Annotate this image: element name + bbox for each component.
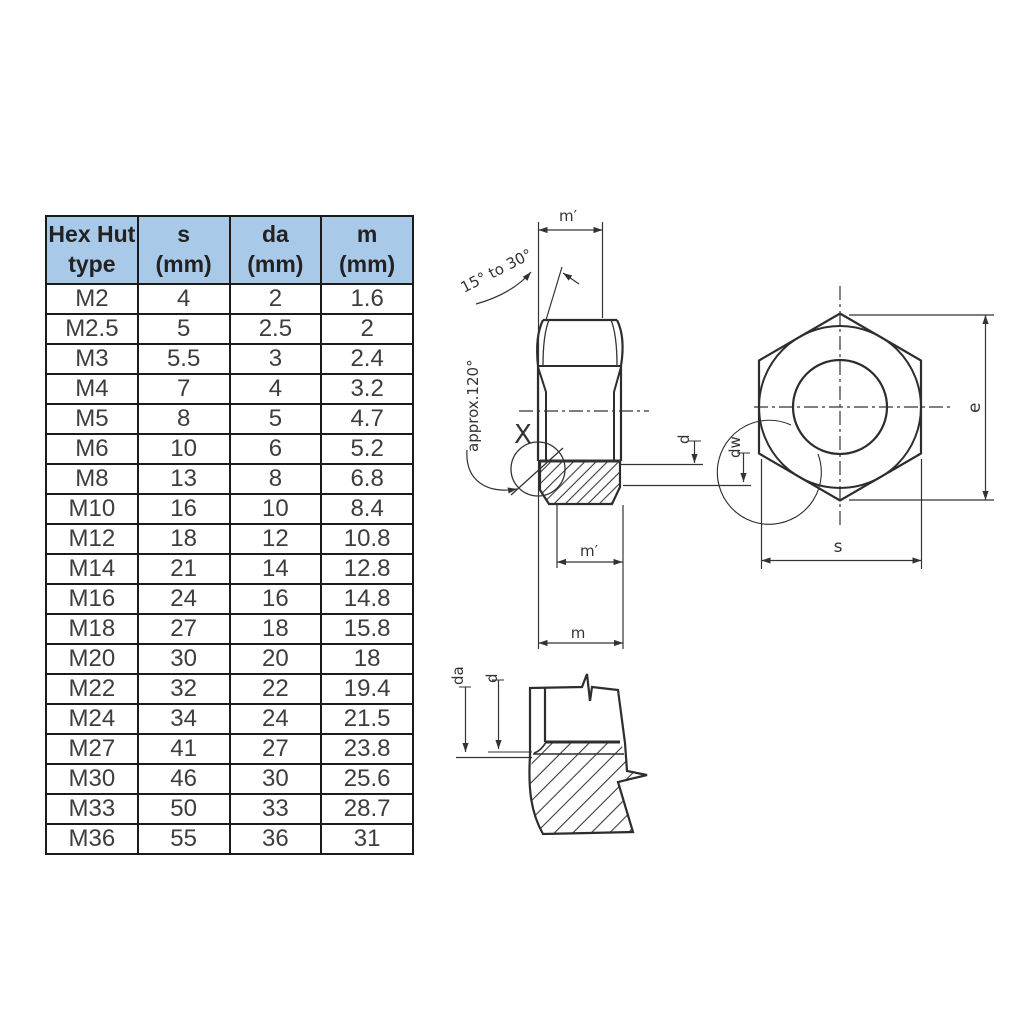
chamfer-angle-arrow bbox=[563, 273, 579, 284]
table-cell: 5.5 bbox=[138, 344, 230, 374]
da-label: da bbox=[449, 666, 467, 685]
table-row: M2.552.52 bbox=[46, 314, 413, 344]
d-label: d bbox=[675, 434, 693, 444]
table-cell: 16 bbox=[138, 494, 230, 524]
header-line: type bbox=[47, 250, 137, 280]
table-cell: 8 bbox=[230, 464, 322, 494]
table-cell: 55 bbox=[138, 824, 230, 854]
table-cell: 41 bbox=[138, 734, 230, 764]
table-cell: M30 bbox=[46, 764, 138, 794]
header-line: Hex Hut bbox=[47, 220, 137, 250]
table-row: M4743.2 bbox=[46, 374, 413, 404]
table-cell: M8 bbox=[46, 464, 138, 494]
table-cell: 16 bbox=[230, 584, 322, 614]
header-line: m bbox=[322, 220, 412, 250]
table-cell: 36 bbox=[230, 824, 322, 854]
table-cell: 4.7 bbox=[321, 404, 413, 434]
table-cell: M10 bbox=[46, 494, 138, 524]
table-cell: 34 bbox=[138, 704, 230, 734]
header-line: (mm) bbox=[322, 250, 412, 280]
table-cell: 21.5 bbox=[321, 704, 413, 734]
table-cell: 12 bbox=[230, 524, 322, 554]
dimension-lines bbox=[539, 230, 624, 643]
table-cell: M36 bbox=[46, 824, 138, 854]
table-cell: M12 bbox=[46, 524, 138, 554]
table-cell: 4 bbox=[138, 284, 230, 314]
table-row: M61065.2 bbox=[46, 434, 413, 464]
hex-nut-spec-image: Hex Hut type s (mm) da (mm) m (mm) M2421… bbox=[0, 0, 1024, 1024]
table-cell: 12.8 bbox=[321, 554, 413, 584]
table-row: M2421.6 bbox=[46, 284, 413, 314]
countersink-leader-arc bbox=[467, 450, 517, 490]
table-cell: 10 bbox=[230, 494, 322, 524]
table-cell: 3.2 bbox=[321, 374, 413, 404]
header-line: s bbox=[139, 220, 229, 250]
table-cell: 2 bbox=[230, 284, 322, 314]
table-row: M24342421.5 bbox=[46, 704, 413, 734]
table-cell: 2.5 bbox=[230, 314, 322, 344]
table-cell: 28.7 bbox=[321, 794, 413, 824]
table-header-row: Hex Hut type s (mm) da (mm) m (mm) bbox=[46, 216, 413, 284]
table-cell: 5 bbox=[138, 314, 230, 344]
table-cell: 19.4 bbox=[321, 674, 413, 704]
table-cell: 24 bbox=[230, 704, 322, 734]
table-cell: 31 bbox=[321, 824, 413, 854]
table-cell: M24 bbox=[46, 704, 138, 734]
table-header: Hex Hut type s (mm) da (mm) m (mm) bbox=[46, 216, 413, 284]
table-cell: 50 bbox=[138, 794, 230, 824]
header-hex-nut-type: Hex Hut type bbox=[46, 216, 138, 284]
table-cell: 32 bbox=[138, 674, 230, 704]
table-cell: 24 bbox=[138, 584, 230, 614]
table-cell: M4 bbox=[46, 374, 138, 404]
table-cell: M2.5 bbox=[46, 314, 138, 344]
extension-lines bbox=[539, 222, 624, 649]
s-label: s bbox=[834, 537, 843, 557]
table-cell: 1.6 bbox=[321, 284, 413, 314]
header-da: da (mm) bbox=[230, 216, 322, 284]
table-cell: 7 bbox=[138, 374, 230, 404]
table-row: M30463025.6 bbox=[46, 764, 413, 794]
table-body: M2421.6M2.552.52M35.532.4M4743.2M5854.7M… bbox=[46, 284, 413, 854]
table-cell: M5 bbox=[46, 404, 138, 434]
table-cell: 2 bbox=[321, 314, 413, 344]
table-cell: 33 bbox=[230, 794, 322, 824]
side-view: m′ 15° to 30° approx.120° X d dw m′ m bbox=[458, 207, 751, 649]
table-cell: M18 bbox=[46, 614, 138, 644]
m-prime-top-label: m′ bbox=[559, 207, 578, 225]
table-cell: 3 bbox=[230, 344, 322, 374]
table-cell: M27 bbox=[46, 734, 138, 764]
table-cell: M33 bbox=[46, 794, 138, 824]
table-cell: 5.2 bbox=[321, 434, 413, 464]
d-detail-label: d bbox=[483, 673, 501, 683]
countersink-angle-note: approx.120° bbox=[464, 359, 482, 452]
table-cell: 10.8 bbox=[321, 524, 413, 554]
table-cell: 8.4 bbox=[321, 494, 413, 524]
technical-drawing: m′ 15° to 30° approx.120° X d dw m′ m bbox=[430, 190, 1010, 870]
header-line: (mm) bbox=[139, 250, 229, 280]
nut-outline bbox=[537, 320, 622, 461]
table-row: M81386.8 bbox=[46, 464, 413, 494]
table-row: M36553631 bbox=[46, 824, 413, 854]
table-row: M33503328.7 bbox=[46, 794, 413, 824]
m-prime-bottom-label: m′ bbox=[580, 542, 599, 560]
section-hatch bbox=[540, 461, 620, 504]
table-cell: 18 bbox=[321, 644, 413, 674]
table-cell: 27 bbox=[230, 734, 322, 764]
table-cell: 30 bbox=[138, 644, 230, 674]
table-cell: M6 bbox=[46, 434, 138, 464]
table-cell: 27 bbox=[138, 614, 230, 644]
table-cell: 13 bbox=[138, 464, 230, 494]
da-leader bbox=[456, 687, 532, 758]
chamfer-angle-line bbox=[546, 267, 562, 320]
d-detail-leader bbox=[488, 680, 532, 752]
table-cell: M2 bbox=[46, 284, 138, 314]
table-row: M16241614.8 bbox=[46, 584, 413, 614]
table-cell: 46 bbox=[138, 764, 230, 794]
table-cell: M22 bbox=[46, 674, 138, 704]
table-cell: 25.6 bbox=[321, 764, 413, 794]
chamfer-arcs bbox=[543, 320, 617, 366]
table-row: M27412723.8 bbox=[46, 734, 413, 764]
header-line: (mm) bbox=[231, 250, 321, 280]
table-cell: 4 bbox=[230, 374, 322, 404]
hex-nut-dimension-table: Hex Hut type s (mm) da (mm) m (mm) M2421… bbox=[45, 215, 414, 855]
table-cell: 18 bbox=[230, 614, 322, 644]
table-row: M35.532.4 bbox=[46, 344, 413, 374]
detail-x-marker: X bbox=[514, 420, 532, 450]
e-label: e bbox=[965, 403, 985, 413]
table-cell: 2.4 bbox=[321, 344, 413, 374]
m-label: m bbox=[571, 624, 586, 642]
thread-arc bbox=[717, 420, 821, 524]
table-row: M22322219.4 bbox=[46, 674, 413, 704]
table-cell: M16 bbox=[46, 584, 138, 614]
table-row: M14211412.8 bbox=[46, 554, 413, 584]
table-cell: 14 bbox=[230, 554, 322, 584]
table-cell: M14 bbox=[46, 554, 138, 584]
header-m: m (mm) bbox=[321, 216, 413, 284]
chamfer-angle-note: 15° to 30° bbox=[458, 245, 535, 296]
table-cell: 15.8 bbox=[321, 614, 413, 644]
table-row: M20302018 bbox=[46, 644, 413, 674]
table-cell: 5 bbox=[230, 404, 322, 434]
table-row: M5854.7 bbox=[46, 404, 413, 434]
table-cell: M20 bbox=[46, 644, 138, 674]
table-row: M1016108.4 bbox=[46, 494, 413, 524]
table-cell: 21 bbox=[138, 554, 230, 584]
table-row: M18271815.8 bbox=[46, 614, 413, 644]
table-cell: 22 bbox=[230, 674, 322, 704]
table-cell: 23.8 bbox=[321, 734, 413, 764]
table-cell: 18 bbox=[138, 524, 230, 554]
table-row: M12181210.8 bbox=[46, 524, 413, 554]
table-cell: 10 bbox=[138, 434, 230, 464]
table-cell: 6.8 bbox=[321, 464, 413, 494]
header-s: s (mm) bbox=[138, 216, 230, 284]
table-cell: 14.8 bbox=[321, 584, 413, 614]
table-cell: 8 bbox=[138, 404, 230, 434]
table-cell: 6 bbox=[230, 434, 322, 464]
table-cell: M3 bbox=[46, 344, 138, 374]
detail-view: da d bbox=[449, 666, 647, 834]
front-view: e s bbox=[717, 286, 994, 569]
table-cell: 30 bbox=[230, 764, 322, 794]
table-cell: 20 bbox=[230, 644, 322, 674]
header-line: da bbox=[231, 220, 321, 250]
